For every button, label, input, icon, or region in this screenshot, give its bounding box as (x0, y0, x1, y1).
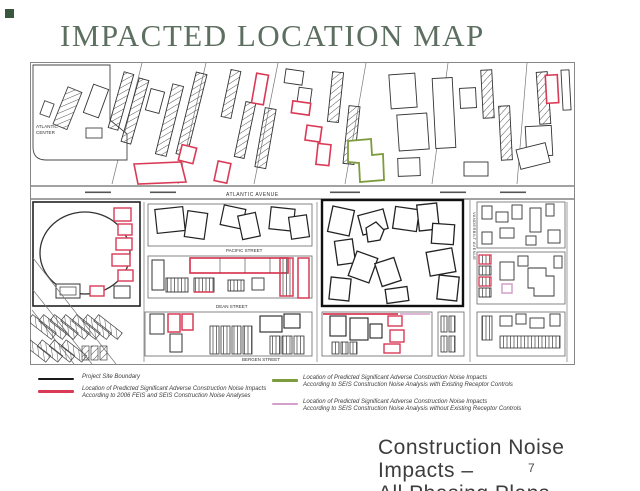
block-b2 (148, 256, 312, 298)
block-b3 (145, 312, 312, 356)
legend-swatch-project-site (38, 378, 74, 380)
block-right-lower (438, 312, 565, 356)
bergen-street-label: BERGEN STREET (242, 357, 280, 362)
block-right-upper (477, 202, 565, 248)
legend-item-project-site: Project Site Boundary (82, 374, 140, 381)
page-title: IMPACTED LOCATION MAP (60, 18, 600, 54)
map-svg: ATLANTIC CENTER (30, 62, 575, 365)
page-number: 7 (528, 461, 535, 475)
vanderbilt-avenue-label: VANDERBILT AVENUE (472, 212, 477, 260)
legend-swatch-red-impacts (38, 390, 74, 393)
legend-item-pink-impacts: Location of Predicted Significant Advers… (303, 399, 521, 413)
footer-line2: All Phasing Plans (378, 482, 628, 491)
block-b1 (148, 204, 312, 246)
legend-item-red-impacts: Location of Predicted Significant Advers… (82, 386, 266, 400)
atlantic-center-label-line1: ATLANTIC (36, 124, 59, 129)
legend-swatch-pink-impacts (272, 403, 298, 405)
slide-corner-mark (5, 9, 14, 18)
arena-oval (40, 212, 130, 294)
pacific-street-label: PACIFIC STREET (226, 248, 263, 253)
impact-pink-building-1 (502, 284, 512, 293)
slide: IMPACTED LOCATION MAP (0, 0, 640, 491)
impacted-location-map: ATLANTIC CENTER (30, 62, 575, 365)
atlantic-avenue-label: ATLANTIC AVENUE (226, 192, 279, 198)
footer-line1: Construction Noise Impacts – (378, 436, 628, 482)
atlantic-center-label-line2: CENTER (36, 130, 56, 135)
slide-footer: Construction Noise Impacts – All Phasing… (378, 436, 628, 491)
dean-street-label: DEAN STREET (216, 304, 248, 309)
legend-swatch-green-impacts (272, 379, 298, 382)
block-right-middle (477, 252, 565, 304)
arena-block (33, 202, 140, 306)
block-b4 (322, 312, 432, 356)
legend-item-green-impacts: Location of Predicted Significant Advers… (303, 375, 513, 389)
superblock (322, 200, 463, 306)
map-legend: Project Site Boundary Location of Predic… (0, 370, 640, 425)
